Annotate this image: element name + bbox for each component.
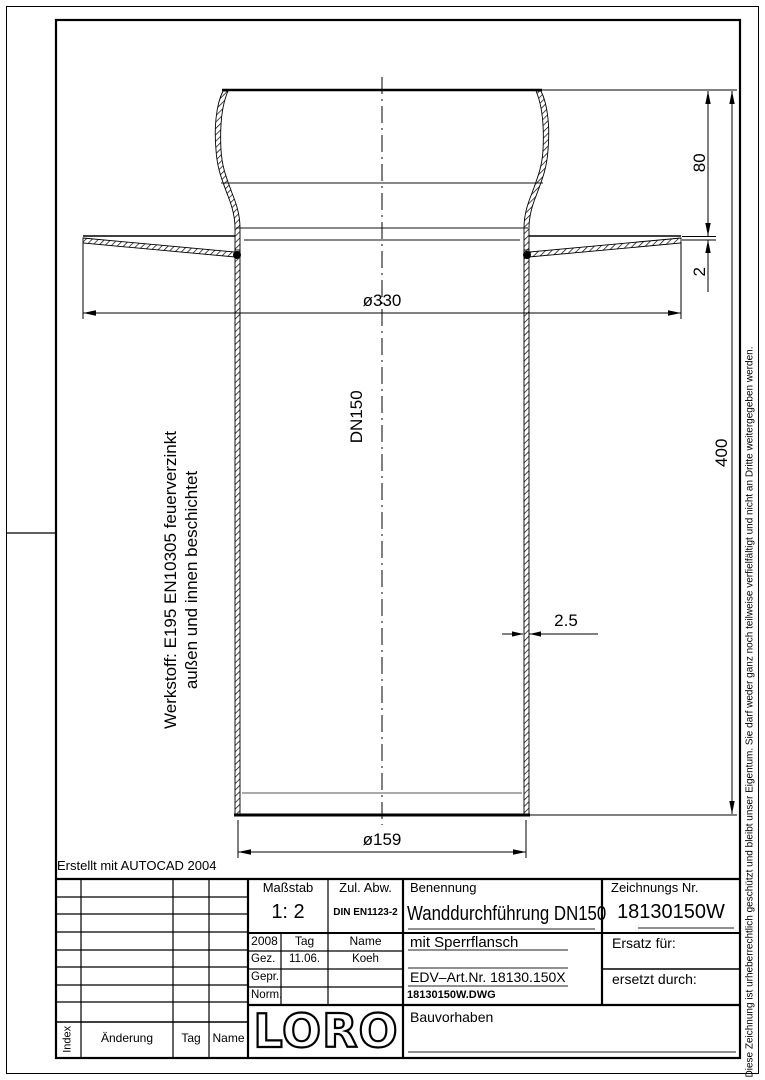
pipe-wall-right [524,250,529,815]
project-label: Bauvorhaben [410,1009,493,1025]
dim-wall-thickness: 2.5 [536,611,596,631]
weld-dot-right [523,251,531,259]
dim-socket-height: 80 [690,143,710,183]
socket-wall-right [524,91,549,253]
dim-pipe-dia: ø159 [332,830,432,850]
scale-label: Maßstab [248,881,328,896]
material-line1: Werkstoff: E195 EN10305 feuerverzinkt [160,410,181,750]
drawing-no-label: Zeichnungs Nr. [611,881,698,896]
approval-col-name: Name [328,935,403,949]
edv-art-no: EDV–Art.Nr. 18130.150X [410,969,566,985]
revision-col-name: Name [209,1032,248,1046]
tolerance-label: Zul. Abw. [328,881,403,896]
tolerance-value: DIN EN1123-2 [330,907,401,919]
socket-wall-left [215,91,240,253]
drawing-sheet: LORO Werkstoff: E195 EN10305 feuerverzin… [0,0,765,1080]
replacement-for-label: Ersatz für: [612,935,676,951]
part-name-subtitle: mit Sperrflansch [410,934,518,951]
approval-row-label: Norm. [251,989,282,1002]
approval-col-date: Tag [281,935,328,949]
loro-logo: LORO [253,1004,398,1058]
created-note: Erstellt mit AUTOCAD 2004 [57,859,216,874]
dim-flange-dia: ø330 [332,291,432,311]
approval-row-label: Gepr. [251,971,279,984]
material-note: Werkstoff: E195 EN10305 feuerverzinkt au… [160,410,202,750]
revision-col-change: Änderung [81,1032,173,1046]
weld-dot-left [233,251,241,259]
nominal-size-label: DN150 [347,387,367,447]
approval-row-date: 11.06. [281,953,328,966]
copyright-note: Diese Zeichnung ist urheberrechtlich ges… [745,298,758,1078]
drawing-no-value: 18130150W [604,901,738,924]
replaced-by-label: ersetzt durch: [612,971,697,987]
material-line2: außen und innen beschichtet [181,410,202,750]
file-name: 18130150W.DWG [407,989,496,1002]
approval-row-name: Koeh [328,953,403,966]
dim-flange-thickness: 2 [690,252,710,292]
pipe-wall-left [235,250,240,815]
approval-year: 2008 [248,935,281,949]
scale-value: 1: 2 [248,901,328,924]
dim-total-length: 400 [712,428,732,478]
revision-col-index: Index [62,1019,75,1059]
revision-col-date: Tag [173,1032,209,1046]
part-name-label: Benennung [410,881,477,896]
approval-row-label: Gez. [251,953,275,966]
part-name-value: Wanddurchführung DN150 [407,903,606,926]
